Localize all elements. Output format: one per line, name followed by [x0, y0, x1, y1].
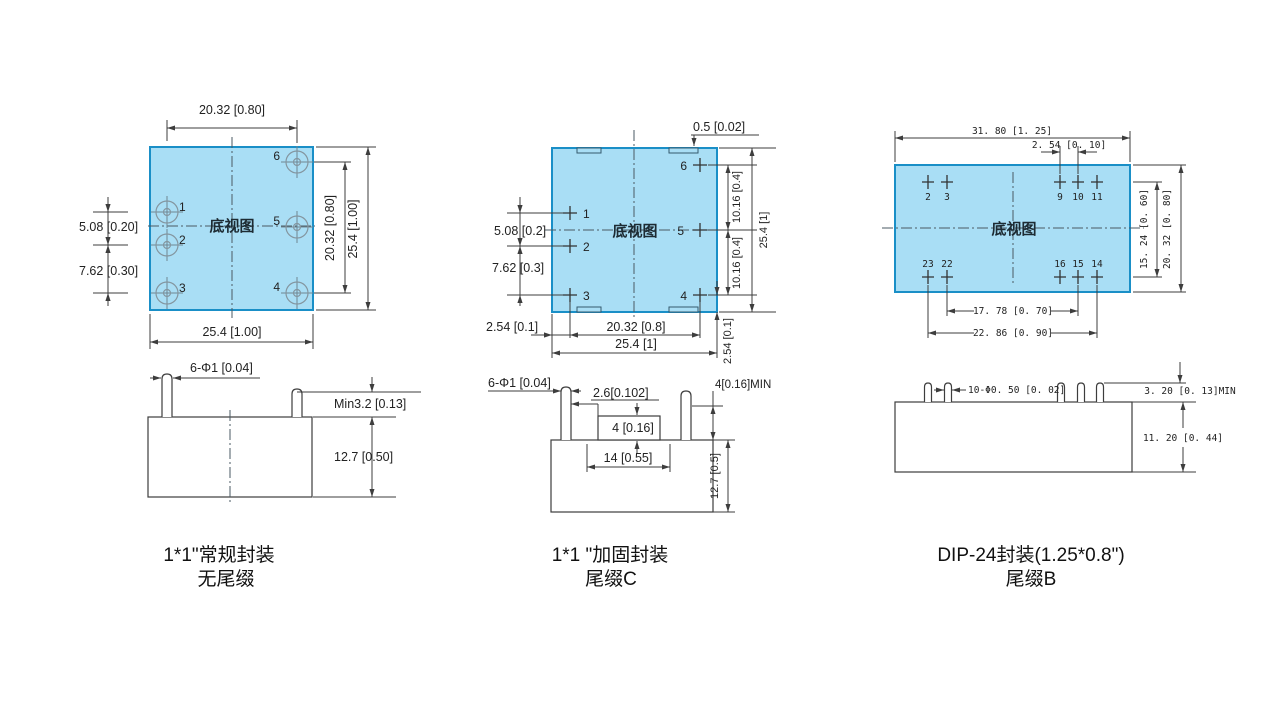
- dim-label: 10.16 [0.4]: [731, 171, 743, 223]
- dim-label: 17. 78 [0. 70]: [973, 306, 1053, 317]
- dim-label: 2.6[0.102]: [593, 386, 649, 400]
- dim-label: 7.62 [0.30]: [79, 264, 138, 278]
- dim-label: 2.54 [0.1]: [486, 320, 538, 334]
- pin-number: 6: [680, 159, 687, 173]
- package1-caption-line2: 无尾缀: [197, 568, 254, 590]
- dim-pin-length: Min3.2 [0.13]: [297, 377, 421, 411]
- notch: [577, 307, 601, 312]
- pin-number: 6: [273, 149, 280, 163]
- pin-number: 3: [179, 281, 186, 295]
- pin-number: 2: [925, 192, 931, 203]
- pin-side-right: [292, 389, 302, 417]
- dim-label: 0.5 [0.02]: [693, 120, 745, 134]
- pin-number: 3: [944, 192, 950, 203]
- dim-label: 4 [0.16]: [612, 421, 654, 435]
- pin-side: [1078, 383, 1085, 402]
- dim-body-height: 11. 20 [0. 44]: [1132, 402, 1223, 472]
- dim-label: 25.4 [1.00]: [202, 325, 261, 339]
- pin-number: 1: [179, 200, 186, 214]
- dim-label: 22. 86 [0. 90]: [973, 328, 1053, 339]
- dim-label: 2.54 [0.1]: [722, 318, 734, 364]
- dim-row-spacing: 5.08 [0.20] 7.62 [0.30]: [79, 197, 138, 306]
- dim-label: 12.7 [0.5]: [709, 453, 721, 499]
- package1: 1 2 3 6 5 4 底视图 20.32 [0.80] 25.4 [1.00]…: [79, 103, 421, 590]
- package3-side-view: 10-Φ0. 50 [0. 02] 3. 20 [0. 13]MIN 11. 2…: [895, 362, 1236, 472]
- dim-label: 4[0.16]MIN: [715, 379, 771, 391]
- dim-body-height: 12.7 [0.50]: [313, 417, 396, 497]
- dim-row-span: 15. 24 [0. 60]: [1133, 182, 1162, 277]
- package2-caption-line2: 尾缀C: [585, 568, 637, 590]
- dim-label: 3. 20 [0. 13]MIN: [1144, 386, 1236, 397]
- dim-pin-length-min: 4[0.16]MIN: [692, 379, 771, 440]
- notch: [577, 148, 601, 153]
- dim-step-width: 2.6[0.102]: [571, 386, 659, 416]
- pin-side-left: [162, 374, 172, 417]
- pin-number: 9: [1057, 192, 1063, 203]
- dim-label: 25.4 [1]: [615, 337, 657, 351]
- dim-label: 10-Φ0. 50 [0. 02]: [968, 385, 1065, 396]
- package2-side-view: 6-Φ1 [0.04] 2.6[0.102] 4 [0.16] 14 [0.55…: [488, 376, 771, 512]
- dim-label: 11. 20 [0. 44]: [1143, 433, 1223, 444]
- pin-number: 1: [583, 207, 590, 221]
- pin-side: [1097, 383, 1104, 402]
- dim-label: 20.32 [0.80]: [323, 195, 337, 261]
- dim-label: 12.7 [0.50]: [334, 450, 393, 464]
- dim-label: 20.32 [0.8]: [606, 320, 665, 334]
- dim-label: 20.32 [0.80]: [199, 103, 265, 117]
- dim-pin-diameter: 10-Φ0. 50 [0. 02]: [934, 385, 1065, 396]
- dim-label: 6-Φ1 [0.04]: [488, 376, 551, 390]
- dim-label: 7.62 [0.3]: [492, 261, 544, 275]
- package1-caption-line1: 1*1"常规封装: [163, 544, 274, 566]
- view-label: 底视图: [991, 220, 1036, 238]
- dim-notch: 0.5 [0.02]: [691, 120, 759, 146]
- package3-caption-line1: DIP-24封装(1.25*0.8"): [937, 544, 1124, 566]
- pin-side-right: [681, 391, 691, 440]
- pin-number: 10: [1072, 192, 1084, 203]
- view-label: 底视图: [612, 222, 657, 240]
- pin-number: 4: [273, 280, 280, 294]
- dim-label: 5.08 [0.20]: [79, 220, 138, 234]
- package2-caption-line1: 1*1 "加固封装: [552, 544, 669, 566]
- dim-label: 31. 80 [1. 25]: [972, 126, 1052, 137]
- package2: 1 2 3 6 5 4 底视图 0.5 [0.02] 10.16 [0.4] 1…: [486, 120, 776, 590]
- dim-pin-length-min: 3. 20 [0. 13]MIN: [1104, 362, 1236, 397]
- pin-number: 23: [922, 259, 933, 270]
- package-outline-drawing-sheet: 1 2 3 6 5 4 底视图 20.32 [0.80] 25.4 [1.00]…: [0, 0, 1280, 720]
- package3: 2 3 9 10 11 23 22 16 15 14 底视图 31. 80 [1…: [882, 126, 1236, 590]
- dim-label: 20. 32 [0. 80]: [1162, 189, 1173, 269]
- dim-width: 25.4 [1.00]: [150, 314, 313, 349]
- dim-label: 25.4 [1.00]: [346, 199, 360, 258]
- drawing-canvas: 1 2 3 6 5 4 底视图 20.32 [0.80] 25.4 [1.00]…: [0, 0, 1280, 720]
- pin-number: 4: [680, 289, 687, 303]
- pin-number: 16: [1054, 259, 1066, 270]
- pin-side: [925, 383, 932, 402]
- pin-number: 14: [1091, 259, 1103, 270]
- dim-label: 15. 24 [0. 60]: [1139, 189, 1150, 269]
- dim-label: Min3.2 [0.13]: [334, 397, 406, 411]
- package3-bottom-view: 2 3 9 10 11 23 22 16 15 14 底视图 31. 80 [1…: [882, 126, 1186, 339]
- pin-side: [945, 383, 952, 402]
- package1-side-view: 6-Φ1 [0.04] Min3.2 [0.13] 12.7 [0.50]: [148, 361, 421, 504]
- pin-number: 15: [1072, 259, 1083, 270]
- pin-side-left: [561, 387, 571, 440]
- pin-number: 2: [179, 233, 186, 247]
- package3-side-body: [895, 402, 1132, 472]
- pin-number: 22: [941, 259, 952, 270]
- notch: [669, 307, 698, 312]
- dim-label: 2. 54 [0. 10]: [1032, 140, 1106, 151]
- dim-label: 14 [0.55]: [604, 451, 653, 465]
- view-label: 底视图: [209, 217, 254, 235]
- dim-row-spacing-right: 10.16 [0.4] 10.16 [0.4] 25.4 [1] 2.54 [0…: [708, 148, 776, 364]
- pin-number: 11: [1091, 192, 1103, 203]
- dim-label: 5.08 [0.2]: [494, 224, 546, 238]
- package2-bottom-view: 1 2 3 6 5 4 底视图 0.5 [0.02] 10.16 [0.4] 1…: [486, 120, 776, 364]
- notch: [669, 148, 698, 153]
- pin-number: 5: [273, 214, 280, 228]
- dim-label: 6-Φ1 [0.04]: [190, 361, 253, 375]
- package3-caption-line2: 尾缀B: [1006, 568, 1057, 590]
- dim-label: 10.16 [0.4]: [731, 237, 743, 289]
- pin-number: 5: [677, 224, 684, 238]
- package1-bottom-view: 1 2 3 6 5 4 底视图 20.32 [0.80] 25.4 [1.00]…: [79, 103, 376, 349]
- pin-number: 2: [583, 240, 590, 254]
- dim-label: 25.4 [1]: [758, 212, 770, 249]
- pin-number: 3: [583, 289, 590, 303]
